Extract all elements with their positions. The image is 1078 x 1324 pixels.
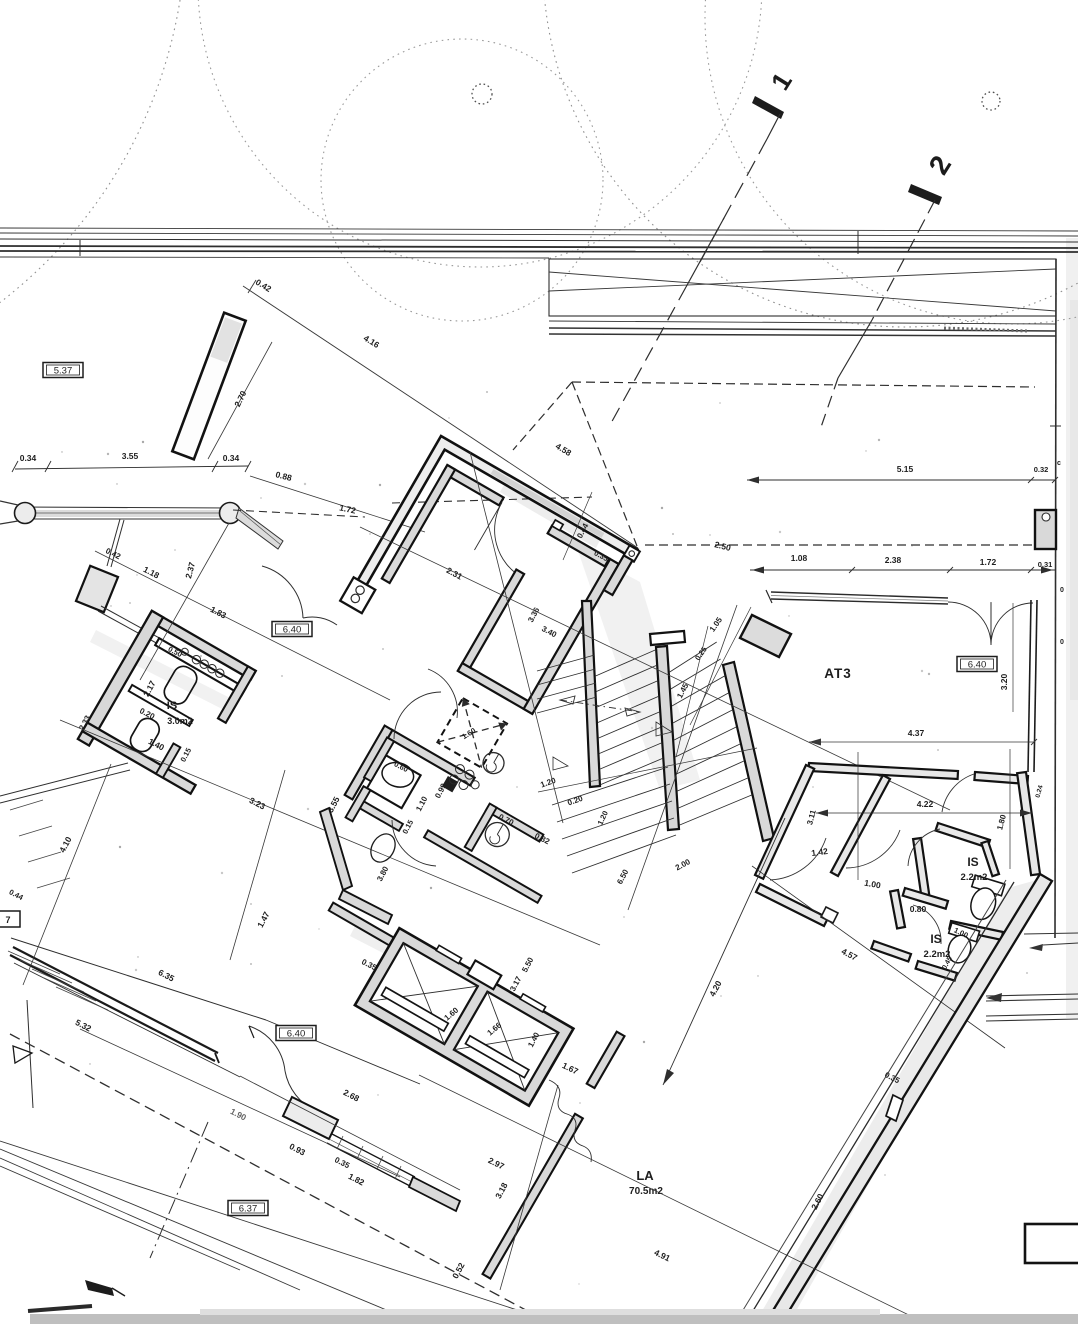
svg-text:IS: IS: [167, 700, 177, 712]
svg-text:7: 7: [5, 915, 10, 925]
svg-text:1.72: 1.72: [980, 557, 997, 567]
svg-text:5.37: 5.37: [54, 366, 73, 377]
svg-text:0: 0: [1060, 587, 1064, 594]
svg-text:AT3: AT3: [824, 666, 852, 681]
svg-text:0.80: 0.80: [910, 904, 927, 914]
svg-text:5.15: 5.15: [897, 464, 914, 474]
svg-text:6.40: 6.40: [968, 660, 987, 671]
svg-text:70.5m2: 70.5m2: [629, 1186, 663, 1197]
svg-text:3.20: 3.20: [999, 673, 1009, 690]
svg-text:0: 0: [1060, 639, 1064, 646]
svg-text:4.37: 4.37: [908, 728, 925, 738]
svg-text:0.34: 0.34: [20, 453, 37, 463]
svg-text:0.34: 0.34: [223, 453, 240, 463]
svg-text:0.31: 0.31: [1038, 560, 1053, 569]
svg-text:6.40: 6.40: [287, 1029, 306, 1040]
svg-text:3.55: 3.55: [122, 451, 139, 461]
svg-text:2.2m2: 2.2m2: [961, 872, 988, 883]
svg-text:6.40: 6.40: [283, 625, 302, 636]
svg-text:IS: IS: [930, 932, 941, 946]
svg-text:LA: LA: [636, 1168, 654, 1183]
svg-text:IS: IS: [967, 855, 978, 869]
svg-text:2.38: 2.38: [885, 555, 902, 565]
svg-text:6.37: 6.37: [239, 1204, 258, 1215]
svg-text:4.22: 4.22: [917, 799, 934, 809]
svg-text:0.32: 0.32: [1034, 465, 1049, 474]
svg-text:c: c: [1057, 460, 1061, 467]
svg-text:1.08: 1.08: [791, 553, 808, 563]
svg-text:3.0m2: 3.0m2: [167, 716, 193, 726]
